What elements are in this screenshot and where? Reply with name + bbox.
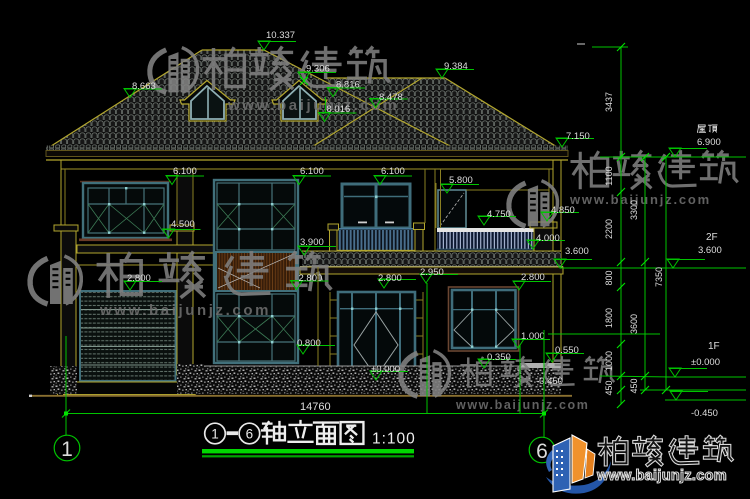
svg-text:2.800: 2.800 xyxy=(378,273,402,284)
svg-text:-0.450: -0.450 xyxy=(691,408,718,419)
svg-text:6.900: 6.900 xyxy=(697,137,721,148)
svg-text:4.000: 4.000 xyxy=(536,233,560,244)
svg-text:14760: 14760 xyxy=(300,401,331,413)
svg-text:1:100: 1:100 xyxy=(372,431,416,448)
svg-text:8.663: 8.663 xyxy=(132,81,156,92)
svg-text:www.baijunjz.com: www.baijunjz.com xyxy=(455,398,589,412)
svg-text:9.306: 9.306 xyxy=(306,64,330,75)
svg-text:9.384: 9.384 xyxy=(444,61,468,72)
svg-text:1.000: 1.000 xyxy=(521,331,545,342)
svg-text:5.800: 5.800 xyxy=(449,175,473,186)
svg-text:4.850: 4.850 xyxy=(551,205,575,216)
svg-text:3.600: 3.600 xyxy=(698,245,722,256)
svg-text:±0.000: ±0.000 xyxy=(691,357,720,368)
svg-text:1000: 1000 xyxy=(604,351,614,371)
svg-text:3.900: 3.900 xyxy=(300,237,324,248)
svg-text:7350: 7350 xyxy=(654,267,664,287)
svg-text:0.800: 0.800 xyxy=(297,338,321,349)
svg-text:3437: 3437 xyxy=(604,92,614,112)
svg-text:6: 6 xyxy=(246,427,254,442)
svg-text:4.500: 4.500 xyxy=(171,219,195,230)
svg-text:6.100: 6.100 xyxy=(173,166,197,177)
svg-text:2200: 2200 xyxy=(604,219,614,239)
svg-text:8.478: 8.478 xyxy=(379,92,403,103)
svg-text:1100: 1100 xyxy=(604,166,614,185)
svg-text:2.800: 2.800 xyxy=(127,273,151,284)
svg-text:www.baijunjz.com: www.baijunjz.com xyxy=(569,192,711,207)
svg-text:1F: 1F xyxy=(708,341,720,352)
svg-text:450: 450 xyxy=(604,380,614,395)
svg-text:8.816: 8.816 xyxy=(336,80,360,91)
svg-text:4.750: 4.750 xyxy=(487,209,511,220)
svg-text:1: 1 xyxy=(61,438,73,461)
svg-text:3.600: 3.600 xyxy=(565,246,589,257)
svg-text:2.800: 2.800 xyxy=(521,272,545,283)
svg-text:450: 450 xyxy=(629,378,639,393)
svg-text:±0.000: ±0.000 xyxy=(371,364,400,375)
svg-text:8.016: 8.016 xyxy=(327,104,351,115)
svg-text:www.baijunjz.com: www.baijunjz.com xyxy=(99,302,271,319)
svg-text:0.550: 0.550 xyxy=(555,345,579,356)
svg-text:6.100: 6.100 xyxy=(381,166,405,177)
svg-text:3600: 3600 xyxy=(629,314,639,334)
svg-text:3300: 3300 xyxy=(629,200,639,220)
svg-text:www.baijunjz.com: www.baijunjz.com xyxy=(596,468,727,484)
svg-text:www.baijunjz.com: www.baijunjz.com xyxy=(227,97,399,114)
svg-text:0.350: 0.350 xyxy=(487,352,511,363)
svg-text:6.100: 6.100 xyxy=(300,166,324,177)
svg-text:7.150: 7.150 xyxy=(566,131,590,142)
svg-text:1800: 1800 xyxy=(604,308,614,328)
svg-text:1: 1 xyxy=(211,427,219,442)
svg-text:2.800: 2.800 xyxy=(299,273,323,284)
svg-text:10.337: 10.337 xyxy=(266,30,295,41)
svg-text:2F: 2F xyxy=(706,232,718,243)
svg-text:6: 6 xyxy=(536,440,548,463)
svg-text:-0.450: -0.450 xyxy=(536,376,563,387)
svg-text:2.950: 2.950 xyxy=(420,267,444,278)
svg-text:800: 800 xyxy=(604,270,614,285)
